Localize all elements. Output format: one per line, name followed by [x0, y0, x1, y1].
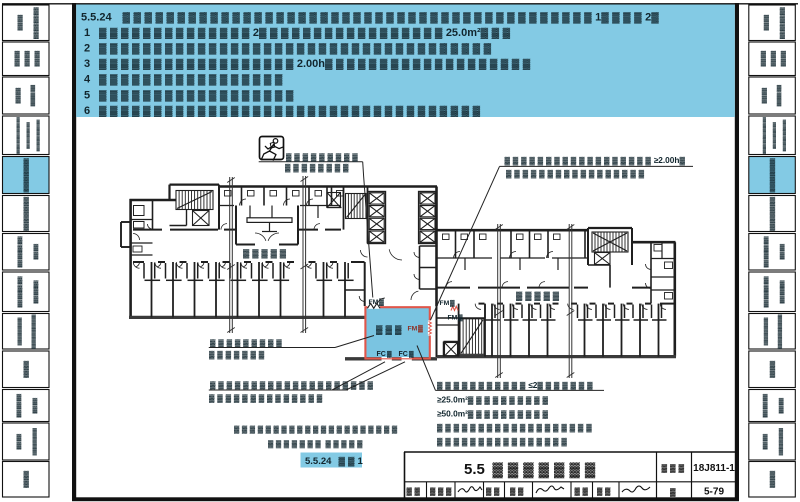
- svg-text:▓: ▓: [18, 284, 23, 292]
- svg-text:▓: ▓: [770, 369, 776, 379]
- svg-text:▓▓▓▓▓▓▓▓▓▓▓▓▓▓2▓▓▓▓▓▓▓▓▓▓▓▓▓▓▓: ▓▓▓▓▓▓▓▓▓▓▓▓▓▓2▓▓▓▓▓▓▓▓▓▓▓▓▓▓▓▓▓25.0m²▓▓…: [99, 27, 514, 39]
- svg-text:▓: ▓: [16, 87, 22, 95]
- svg-text:▓: ▓: [24, 183, 30, 193]
- svg-text:▓: ▓: [779, 435, 784, 442]
- svg-text:▓: ▓: [18, 300, 23, 308]
- svg-text:▓▓▓: ▓▓▓: [376, 325, 405, 336]
- svg-text:▓: ▓: [34, 31, 40, 39]
- svg-text:▓: ▓: [17, 401, 22, 409]
- svg-text:▓: ▓: [18, 338, 23, 345]
- svg-text:▓: ▓: [780, 280, 785, 288]
- svg-text:▓: ▓: [777, 85, 782, 92]
- svg-text:▓: ▓: [780, 296, 785, 304]
- svg-text:FM: FM: [369, 299, 379, 306]
- svg-text:▓: ▓: [761, 51, 767, 59]
- svg-text:▓: ▓: [458, 315, 463, 322]
- svg-text:▓: ▓: [17, 441, 22, 449]
- svg-text:▓: ▓: [34, 288, 39, 296]
- svg-text:▓: ▓: [32, 342, 37, 349]
- svg-text:▓: ▓: [781, 51, 787, 59]
- svg-text:▓▓▓▓▓▓▓▓▓▓▓▓▓▓▓▓▓▓: ▓▓▓▓▓▓▓▓▓▓▓▓▓▓▓▓▓▓: [99, 89, 297, 101]
- svg-text:5: 5: [84, 89, 90, 101]
- svg-text:▓▓▓▓▓▓▓▓▓▓▓▓▓▓▓▓▓▓▓▓▓▓▓▓▓▓▓▓▓▓: ▓▓▓▓▓▓▓▓▓▓▓▓▓▓▓▓▓▓▓▓▓▓▓▓▓▓▓▓▓▓▓▓▓▓▓▓: [99, 43, 495, 55]
- svg-text:≥25.0m²▓▓▓▓▓▓▓▓▓▓: ≥25.0m²▓▓▓▓▓▓▓▓▓▓: [437, 394, 551, 405]
- svg-text:▓: ▓: [24, 222, 30, 232]
- svg-text:▓: ▓: [763, 433, 768, 441]
- svg-text:▓: ▓: [15, 59, 21, 67]
- svg-text:▓: ▓: [25, 59, 31, 67]
- svg-text:▓: ▓: [780, 15, 786, 23]
- svg-text:5-79: 5-79: [704, 487, 724, 498]
- svg-text:▓: ▓: [779, 405, 784, 413]
- svg-text:▓: ▓: [778, 342, 783, 349]
- svg-text:▓: ▓: [764, 325, 769, 332]
- svg-text:FM: FM: [440, 300, 450, 307]
- svg-text:5.5.24: 5.5.24: [305, 456, 332, 467]
- svg-text:▓: ▓: [18, 244, 23, 252]
- svg-text:▓: ▓: [387, 351, 392, 358]
- svg-text:▓: ▓: [24, 369, 30, 379]
- svg-text:▓: ▓: [764, 23, 770, 31]
- svg-text:▓: ▓: [34, 7, 40, 15]
- svg-text:▓▓▓: ▓▓▓: [662, 464, 688, 474]
- svg-text:▓▓▓▓▓: ▓▓▓▓▓: [516, 291, 562, 302]
- svg-text:▓: ▓: [25, 51, 31, 59]
- svg-text:▓▓▓▓▓▓▓▓▓▓▓▓▓▓▓▓▓: ▓▓▓▓▓▓▓▓▓▓▓▓▓▓▓▓▓: [99, 74, 286, 86]
- svg-text:▓: ▓: [18, 292, 23, 300]
- svg-text:▓: ▓: [764, 244, 769, 252]
- svg-text:▓: ▓: [764, 236, 769, 244]
- svg-text:▓: ▓: [18, 260, 23, 268]
- svg-text:▓▓▓: ▓▓▓: [430, 487, 454, 497]
- svg-text:▓: ▓: [33, 428, 38, 435]
- svg-text:▓: ▓: [31, 99, 36, 106]
- svg-text:▓: ▓: [34, 252, 39, 260]
- svg-text:▓: ▓: [450, 300, 455, 307]
- svg-text:▓: ▓: [778, 335, 783, 342]
- svg-text:6: 6: [84, 105, 90, 117]
- svg-text:▓: ▓: [770, 479, 776, 489]
- svg-text:▓: ▓: [34, 296, 39, 304]
- svg-text:3: 3: [84, 58, 90, 70]
- svg-text:18J811-1: 18J811-1: [693, 463, 735, 474]
- svg-text:▓: ▓: [780, 23, 786, 31]
- svg-text:5.5: 5.5: [464, 461, 485, 478]
- svg-text:▓▓▓▓▓▓▓▓▓▓▓▓▓▓▓▓▓▓▓▓: ▓▓▓▓▓▓▓▓▓▓▓▓▓▓▓▓▓▓▓▓: [210, 381, 376, 391]
- svg-text:▓: ▓: [764, 338, 769, 345]
- svg-text:▓: ▓: [17, 409, 22, 417]
- svg-text:▓: ▓: [17, 394, 22, 402]
- svg-text:FM: FM: [408, 326, 418, 333]
- svg-text:▓: ▓: [34, 23, 40, 31]
- svg-text:▓: ▓: [777, 92, 782, 99]
- svg-text:▓: ▓: [763, 441, 768, 449]
- svg-text:▓▓▓▓▓▓▓▓▓▓▓▓▓▓▓▓▓: ▓▓▓▓▓▓▓▓▓▓▓▓▓▓▓▓▓: [506, 169, 647, 179]
- svg-text:▓▓▓▓▓▓▓▓▓▓▓▓▓▓: ▓▓▓▓▓▓▓▓▓▓▓▓▓▓: [209, 393, 325, 403]
- svg-text:▓: ▓: [780, 7, 786, 15]
- svg-text:▓: ▓: [779, 428, 784, 435]
- svg-text:▓: ▓: [418, 325, 423, 333]
- svg-text:▓▓▓▓▓: ▓▓▓▓▓: [243, 248, 289, 259]
- svg-text:▓: ▓: [32, 328, 37, 335]
- svg-text:▓▓: ▓▓: [575, 487, 591, 497]
- svg-text:▓▓▓▓▓▓▓▓▓▓▓▓▓▓▓▓▓▓2.00h▓▓▓▓▓▓▓: ▓▓▓▓▓▓▓▓▓▓▓▓▓▓▓▓▓▓2.00h▓▓▓▓▓▓▓▓▓▓▓▓▓▓▓▓▓…: [99, 58, 534, 70]
- svg-text:▓▓▓▓▓▓▓: ▓▓▓▓▓▓▓: [209, 350, 267, 360]
- svg-text:▓: ▓: [18, 15, 24, 23]
- svg-text:FC: FC: [377, 351, 386, 358]
- svg-text:▓: ▓: [779, 442, 784, 449]
- svg-text:▓: ▓: [770, 183, 776, 193]
- svg-text:▓▓▓▓▓▓▓▓▓▓▓≤2▓▓▓▓▓▓▓: ▓▓▓▓▓▓▓▓▓▓▓≤2▓▓▓▓▓▓▓: [437, 380, 595, 391]
- svg-text:▓: ▓: [763, 394, 768, 402]
- svg-text:▓: ▓: [32, 321, 37, 328]
- svg-text:1: 1: [358, 456, 364, 467]
- svg-text:▓: ▓: [18, 23, 24, 31]
- svg-text:▓: ▓: [33, 442, 38, 449]
- svg-text:▓▓▓▓▓▓▓▓: ▓▓▓▓▓▓▓▓: [285, 163, 351, 173]
- svg-text:▓▓: ▓▓: [486, 487, 502, 497]
- svg-text:▓: ▓: [764, 292, 769, 300]
- svg-text:▓: ▓: [15, 51, 21, 59]
- svg-text:▓▓▓▓▓▓▓▓▓▓▓▓▓▓▓▓▓▓▓▓▓▓▓▓▓▓▓▓▓▓: ▓▓▓▓▓▓▓▓▓▓▓▓▓▓▓▓▓▓▓▓▓▓▓▓▓▓▓▓▓▓▓▓▓▓▓: [99, 105, 484, 117]
- svg-text:▓: ▓: [24, 479, 30, 489]
- svg-text:▓: ▓: [16, 95, 22, 103]
- svg-text:▓: ▓: [18, 236, 23, 244]
- svg-text:▓: ▓: [32, 314, 37, 321]
- svg-text:5.5.24: 5.5.24: [81, 11, 112, 23]
- svg-text:▓: ▓: [764, 332, 769, 339]
- svg-text:▓: ▓: [780, 252, 785, 260]
- svg-text:▓▓: ▓▓: [407, 487, 423, 497]
- svg-text:▓: ▓: [18, 252, 23, 260]
- svg-text:▓: ▓: [18, 318, 23, 325]
- svg-text:▓: ▓: [32, 335, 37, 342]
- svg-text:▓: ▓: [779, 449, 784, 456]
- svg-text:FM: FM: [448, 315, 458, 322]
- svg-text:▓: ▓: [34, 244, 39, 252]
- svg-text:▓▓: ▓▓: [597, 487, 613, 497]
- svg-text:▓: ▓: [778, 328, 783, 335]
- svg-text:2: 2: [84, 43, 90, 55]
- svg-text:▓▓▓▓▓▓▓▓▓▓▓▓▓▓▓▓▓▓▓▓▓: ▓▓▓▓▓▓▓▓▓▓▓▓▓▓▓▓▓▓▓▓▓: [234, 425, 400, 435]
- svg-text:▓▓▓▓▓▓▓▓▓: ▓▓▓▓▓▓▓▓▓: [210, 338, 285, 348]
- svg-text:▓: ▓: [18, 332, 23, 339]
- svg-text:▓: ▓: [764, 252, 769, 260]
- svg-text:▓: ▓: [770, 222, 776, 232]
- svg-text:▓: ▓: [762, 95, 768, 103]
- svg-text:▓: ▓: [33, 405, 38, 413]
- svg-text:1: 1: [84, 27, 90, 39]
- svg-text:▓: ▓: [778, 314, 783, 321]
- svg-text:▓: ▓: [764, 276, 769, 284]
- svg-text:▓: ▓: [764, 318, 769, 325]
- svg-text:▓: ▓: [781, 59, 787, 67]
- svg-text:▓▓▓▓▓▓▓: ▓▓▓▓▓▓▓: [493, 462, 601, 479]
- svg-text:4: 4: [84, 74, 91, 86]
- svg-text:▓: ▓: [33, 397, 38, 405]
- svg-text:▓▓▓▓▓▓▓▓▓▓▓▓▓▓▓▓▓▓≥2.00h▓: ▓▓▓▓▓▓▓▓▓▓▓▓▓▓▓▓▓▓≥2.00h▓: [505, 155, 688, 166]
- svg-text:▓▓: ▓▓: [510, 487, 526, 497]
- svg-text:▓▓▓▓▓▓▓▓▓▓▓▓▓▓▓▓: ▓▓▓▓▓▓▓▓▓▓▓▓▓▓▓▓: [437, 437, 570, 447]
- svg-text:▓: ▓: [17, 433, 22, 441]
- svg-text:▓: ▓: [34, 280, 39, 288]
- svg-text:≥50.0m²▓▓▓▓▓▓▓▓▓▓: ≥50.0m²▓▓▓▓▓▓▓▓▓▓: [437, 408, 551, 419]
- svg-text:▓: ▓: [764, 284, 769, 292]
- svg-text:FC: FC: [399, 351, 408, 358]
- svg-text:▓▓▓▓▓▓▓▓▓▓▓▓▓▓▓▓▓▓▓: ▓▓▓▓▓▓▓▓▓▓▓▓▓▓▓▓▓▓▓: [437, 423, 594, 433]
- svg-text:▓: ▓: [409, 351, 414, 358]
- svg-text:▓: ▓: [33, 449, 38, 456]
- svg-text:▓: ▓: [31, 92, 36, 99]
- svg-text:▓: ▓: [18, 276, 23, 284]
- svg-text:▓: ▓: [18, 325, 23, 332]
- svg-text:▓: ▓: [764, 260, 769, 268]
- svg-text:▓: ▓: [764, 300, 769, 308]
- svg-text:▓: ▓: [780, 288, 785, 296]
- svg-text:▓: ▓: [762, 87, 768, 95]
- svg-text:▓: ▓: [35, 59, 41, 67]
- svg-text:▓: ▓: [33, 435, 38, 442]
- svg-text:▓: ▓: [763, 401, 768, 409]
- svg-text:▓: ▓: [778, 321, 783, 328]
- svg-text:▓▓: ▓▓: [339, 456, 358, 467]
- svg-text:▓▓▓▓▓▓▓ ▓▓▓▓▓: ▓▓▓▓▓▓▓ ▓▓▓▓▓: [268, 439, 365, 449]
- svg-text:▓: ▓: [780, 31, 786, 39]
- svg-text:▓: ▓: [780, 244, 785, 252]
- svg-text:▓: ▓: [777, 99, 782, 106]
- svg-text:▓: ▓: [763, 409, 768, 417]
- svg-text:▓: ▓: [35, 51, 41, 59]
- svg-text:▓: ▓: [31, 85, 36, 92]
- svg-text:▓: ▓: [761, 59, 767, 67]
- svg-text:▓▓▓▓▓▓▓▓▓: ▓▓▓▓▓▓▓▓▓: [286, 152, 361, 162]
- svg-text:▓: ▓: [764, 15, 770, 23]
- svg-text:▓: ▓: [670, 488, 679, 498]
- svg-text:▓: ▓: [779, 397, 784, 405]
- svg-text:▓: ▓: [771, 51, 777, 59]
- svg-text:▓▓▓▓▓▓▓▓▓▓▓▓▓▓▓▓▓▓▓▓▓▓▓▓▓▓▓▓▓▓: ▓▓▓▓▓▓▓▓▓▓▓▓▓▓▓▓▓▓▓▓▓▓▓▓▓▓▓▓▓▓▓▓▓▓▓▓▓▓▓▓…: [123, 11, 663, 23]
- svg-text:▓: ▓: [379, 298, 384, 306]
- svg-text:▓: ▓: [34, 15, 40, 23]
- svg-text:▓: ▓: [771, 59, 777, 67]
